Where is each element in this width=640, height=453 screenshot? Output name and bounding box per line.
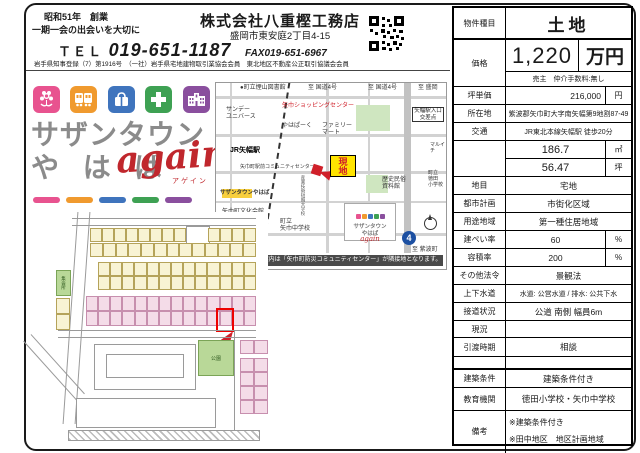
unit-price-label: 坪単価 bbox=[454, 87, 506, 104]
land-category-label: 地目 bbox=[454, 177, 506, 194]
lot-cell bbox=[154, 243, 167, 257]
lot-cell bbox=[254, 372, 268, 386]
plat-road-hatched bbox=[68, 430, 260, 441]
lot-cell bbox=[98, 262, 110, 276]
map-mini-logo: サザンタウン やはば again bbox=[344, 203, 396, 241]
qr-code-icon bbox=[368, 15, 405, 52]
lot-strip bbox=[56, 298, 70, 330]
logo-script-again: again bbox=[115, 132, 229, 182]
lot-cell bbox=[195, 262, 207, 276]
row-other-laws: その他法令 景観法 bbox=[454, 266, 631, 284]
lot-cell bbox=[232, 228, 244, 242]
lot-cell bbox=[128, 243, 141, 257]
location-value: 紫波郡矢巾町大字南矢幅第9地割87-49 bbox=[506, 105, 631, 122]
lot-cell bbox=[110, 276, 122, 290]
remarks-line1: ※建築条件付き bbox=[509, 415, 628, 432]
plat-block bbox=[76, 398, 216, 428]
remarks-line2: ※田中地区 地区計画地域 bbox=[509, 432, 628, 449]
coverage-unit: % bbox=[605, 231, 631, 248]
current-state-label: 現況 bbox=[454, 321, 506, 337]
row-coverage-ratio: 建ぺい率 60 % bbox=[454, 230, 631, 248]
lot-strip bbox=[98, 276, 256, 290]
lot-cell bbox=[141, 243, 154, 257]
lot-cell bbox=[179, 243, 192, 257]
lot-cell bbox=[138, 228, 150, 242]
building-condition-value: 建築条件付き bbox=[506, 370, 631, 387]
lot-cell bbox=[56, 314, 70, 330]
row-spacer bbox=[454, 356, 631, 368]
spacer-label bbox=[454, 357, 506, 368]
lot-cell bbox=[232, 276, 244, 290]
plat-road bbox=[72, 218, 256, 219]
compass-icon bbox=[424, 217, 437, 230]
map-label-to-route4-b: 至 国道4号 bbox=[368, 85, 397, 92]
schools-value: 徳田小学校・矢巾中学校 bbox=[506, 388, 631, 410]
lot-strip bbox=[240, 358, 268, 372]
lot-cell bbox=[240, 340, 254, 354]
header-divider bbox=[26, 70, 450, 71]
target-lot-highlight bbox=[216, 308, 234, 332]
plat-road bbox=[58, 337, 256, 338]
other-laws-label: その他法令 bbox=[454, 267, 506, 284]
plat-road bbox=[58, 330, 256, 331]
water-label: 上下水道 bbox=[454, 285, 506, 302]
lot-cell bbox=[135, 311, 147, 326]
price-unit: 万円 bbox=[578, 40, 631, 71]
lot-cell bbox=[220, 262, 232, 276]
lot-cell bbox=[254, 386, 268, 400]
map-label-southern-town: サザンタウンやはば bbox=[220, 190, 270, 196]
lot-cell bbox=[102, 228, 114, 242]
meeting-hall-label: 集会所 bbox=[61, 276, 67, 290]
train-icon bbox=[70, 86, 97, 113]
founded-year: 昭和51年 創業 bbox=[44, 10, 108, 23]
location-label: 所在地 bbox=[454, 105, 506, 122]
tel-label: ＴＥＬ bbox=[58, 44, 103, 59]
land-category-value: 宅地 bbox=[506, 177, 631, 194]
lot-cell bbox=[254, 400, 268, 414]
lot-cell bbox=[183, 296, 195, 311]
lot-cell bbox=[244, 311, 256, 326]
price-note: 売主 仲介手数料:無し bbox=[506, 71, 631, 86]
row-water-sewer: 上下水道 水道: 公営水道 / 排水: 公共下水 bbox=[454, 284, 631, 302]
spacer-value bbox=[506, 357, 631, 368]
row-zoning: 用途地域 第一種住居地域 bbox=[454, 212, 631, 230]
map-label-to-route4-a: 至 国道4号 bbox=[308, 85, 337, 92]
park-lot: 公園 bbox=[198, 340, 234, 376]
floor-ratio-unit: % bbox=[605, 249, 631, 266]
lot-cell bbox=[114, 228, 126, 242]
lot-cell bbox=[208, 228, 220, 242]
row-delivery: 引渡時期 相談 bbox=[454, 337, 631, 356]
bag-icon bbox=[108, 86, 135, 113]
map-label-maruichi: マルイチ bbox=[430, 143, 446, 155]
lot-cell bbox=[116, 243, 129, 257]
map-label-to-morioka: 至 盛岡 bbox=[418, 85, 438, 92]
phone-row: ＴＥＬ 019-651-1187 FAX019-651-6967 bbox=[58, 40, 327, 61]
row-building-condition: 建築条件 建築条件付き bbox=[454, 368, 631, 387]
plat-road bbox=[234, 330, 235, 440]
road-value: 公道 南側 幅員6m bbox=[506, 303, 631, 320]
remarks-value: ※建築条件付き ※田中地区 地区計画地域 bbox=[506, 411, 631, 453]
row-location: 所在地 紫波郡矢巾町大字南矢幅第9地割87-49 bbox=[454, 104, 631, 122]
lot-cell bbox=[171, 296, 183, 311]
plat-road bbox=[72, 225, 256, 226]
lot-cell bbox=[147, 311, 159, 326]
lot-cell bbox=[98, 296, 110, 311]
lot-cell bbox=[171, 311, 183, 326]
area-tsubo-unit: 坪 bbox=[605, 159, 631, 176]
school-icon bbox=[183, 86, 210, 113]
property-type-label: 物件種目 bbox=[454, 8, 506, 38]
unit-price-unit: 円 bbox=[605, 87, 631, 104]
lot-cell bbox=[134, 276, 146, 290]
lot-cell bbox=[243, 243, 256, 257]
lot-strip bbox=[240, 372, 268, 386]
row-property-type: 物件種目 土地 bbox=[454, 8, 631, 38]
property-type-value: 土地 bbox=[506, 8, 631, 38]
row-remarks: 備考 ※建築条件付き ※田中地区 地区計画地域 bbox=[454, 410, 631, 453]
property-detail-table: 物件種目 土地 価格 1,220 万円 売主 仲介手数料:無し 坪単価 216,… bbox=[452, 6, 633, 446]
map-label-junior-high: 町立 矢巾中学校 bbox=[280, 219, 310, 233]
lot-cell bbox=[220, 228, 232, 242]
lot-strip bbox=[240, 340, 268, 354]
lot-cell bbox=[254, 358, 268, 372]
site-callout: 現 地 bbox=[330, 155, 356, 177]
area-sqm-value: 186.7 bbox=[506, 141, 605, 158]
lot-cell bbox=[147, 276, 159, 290]
row-access: 交通 JR東北本線矢幅駅 徒歩20分 bbox=[454, 122, 631, 140]
lot-cell bbox=[192, 243, 205, 257]
lot-cell bbox=[183, 262, 195, 276]
map-label-sunday: サンデー ユニバース bbox=[226, 107, 256, 121]
meeting-hall-lot: 集会所 bbox=[56, 270, 71, 296]
medical-cross-icon bbox=[145, 86, 172, 113]
lot-cell bbox=[195, 296, 207, 311]
row-land-area: 186.7 ㎡ 56.47 坪 bbox=[454, 140, 631, 176]
lot-cell bbox=[244, 262, 256, 276]
map-green-area bbox=[356, 105, 390, 131]
city-planning-label: 都市計画 bbox=[454, 195, 506, 212]
floor-ratio-value: 200 bbox=[506, 249, 605, 266]
lot-cell bbox=[171, 276, 183, 290]
zoning-label: 用途地域 bbox=[454, 213, 506, 230]
lot-cell bbox=[122, 262, 134, 276]
zoning-value: 第一種住居地域 bbox=[506, 213, 631, 230]
row-city-planning: 都市計画 市街化区域 bbox=[454, 194, 631, 212]
lot-cell bbox=[86, 311, 98, 326]
dash-orange bbox=[66, 197, 93, 203]
lot-cell bbox=[207, 262, 219, 276]
lot-strip bbox=[98, 262, 256, 276]
floor-ratio-label: 容積率 bbox=[454, 249, 506, 266]
delivery-label: 引渡時期 bbox=[454, 338, 506, 356]
price-label: 価格 bbox=[454, 40, 506, 86]
lot-cell bbox=[159, 262, 171, 276]
access-label: 交通 bbox=[454, 123, 506, 140]
delivery-value: 相談 bbox=[506, 338, 631, 356]
lot-cell bbox=[174, 228, 186, 242]
lot-cell bbox=[207, 276, 219, 290]
map-label-station: JR矢幅駅 bbox=[230, 147, 260, 155]
lot-cell bbox=[162, 228, 174, 242]
logo-dash-row bbox=[33, 190, 198, 208]
lot-cell bbox=[244, 228, 256, 242]
lot-cell bbox=[240, 372, 254, 386]
lot-cell bbox=[126, 228, 138, 242]
lot-strip bbox=[240, 400, 268, 414]
lot-cell bbox=[183, 311, 195, 326]
mini-logo-icons bbox=[345, 206, 395, 224]
remarks-label: 備考 bbox=[454, 411, 506, 453]
row-floor-area-ratio: 容積率 200 % bbox=[454, 248, 631, 266]
lot-cell bbox=[254, 340, 268, 354]
lot-cell bbox=[150, 228, 162, 242]
lot-cell bbox=[244, 276, 256, 290]
dash-pink bbox=[33, 197, 60, 203]
lot-cell bbox=[159, 311, 171, 326]
plat-block bbox=[106, 354, 184, 378]
lot-cell bbox=[110, 311, 122, 326]
tel-number: 019-651-1187 bbox=[109, 40, 232, 60]
lot-cell bbox=[122, 311, 134, 326]
lot-cell bbox=[230, 243, 243, 257]
lot-cell bbox=[110, 262, 122, 276]
lot-cell bbox=[110, 296, 122, 311]
map-label-crossing: 矢幅駅入口 交差点 bbox=[412, 107, 444, 122]
lot-cell bbox=[90, 228, 102, 242]
coverage-label: 建ぺい率 bbox=[454, 231, 506, 248]
lot-cell bbox=[220, 276, 232, 290]
lot-cell bbox=[159, 296, 171, 311]
lot-strip bbox=[240, 386, 268, 400]
lot-cell bbox=[195, 276, 207, 290]
lot-cell bbox=[98, 276, 110, 290]
lot-strip bbox=[90, 228, 186, 242]
map-label-university: 産業技術短期大学校 bbox=[300, 175, 306, 216]
row-land-category: 地目 宅地 bbox=[454, 176, 631, 194]
logo-script-kana: アゲイン bbox=[172, 176, 208, 186]
lot-cell bbox=[147, 296, 159, 311]
lot-cell bbox=[90, 243, 103, 257]
lot-cell bbox=[171, 262, 183, 276]
area-sqm-unit: ㎡ bbox=[605, 141, 631, 158]
park-label: 公園 bbox=[211, 355, 221, 362]
lot-cell bbox=[122, 296, 134, 311]
lot-strip bbox=[208, 228, 256, 242]
company-slogan: 一期一会の出会いを大切に bbox=[32, 23, 140, 36]
lot-cell bbox=[205, 243, 218, 257]
city-planning-value: 市街化区域 bbox=[506, 195, 631, 212]
map-label-museum: 歴史民俗 資料館 bbox=[382, 177, 406, 191]
dash-purple bbox=[165, 197, 192, 203]
lot-cell bbox=[159, 276, 171, 290]
map-road bbox=[216, 96, 446, 99]
building-condition-label: 建築条件 bbox=[454, 370, 506, 387]
row-price: 価格 1,220 万円 売主 仲介手数料:無し bbox=[454, 38, 631, 86]
row-current-state: 現況 bbox=[454, 320, 631, 337]
fax-number: FAX019-651-6967 bbox=[245, 48, 327, 59]
lot-cell bbox=[240, 400, 254, 414]
flower-icon bbox=[33, 86, 60, 113]
lot-cell bbox=[232, 262, 244, 276]
lot-cell bbox=[218, 243, 231, 257]
license-registration: 岩手県知事登録（7）第1916号 （一社）岩手県宅地建物取引業協会会員 東北地区… bbox=[34, 59, 446, 68]
access-value: JR東北本線矢幅駅 徒歩20分 bbox=[506, 123, 631, 140]
lot-cell bbox=[98, 311, 110, 326]
row-unit-price: 坪単価 216,000 円 bbox=[454, 86, 631, 104]
map-label-shopping-center: 矢巾ショッピングセンター bbox=[282, 103, 354, 110]
lot-cell bbox=[240, 358, 254, 372]
lot-cell bbox=[103, 243, 116, 257]
row-road-access: 接道状況 公道 南側 幅員6m bbox=[454, 302, 631, 320]
lot-cell bbox=[134, 262, 146, 276]
lot-cell bbox=[122, 276, 134, 290]
road-label: 接道状況 bbox=[454, 303, 506, 320]
area-tsubo-value: 56.47 bbox=[506, 159, 605, 176]
price-value: 1,220 bbox=[506, 40, 578, 71]
lot-cell bbox=[244, 296, 256, 311]
coverage-value: 60 bbox=[506, 231, 605, 248]
lot-strip bbox=[90, 243, 256, 257]
route4-road bbox=[404, 83, 411, 253]
lot-cell bbox=[183, 276, 195, 290]
lot-cell bbox=[167, 243, 180, 257]
lot-cell bbox=[86, 296, 98, 311]
lot-cell bbox=[147, 262, 159, 276]
lot-cell bbox=[56, 298, 70, 314]
lot-cell bbox=[135, 296, 147, 311]
map-label-familymart: ファミリー マート bbox=[322, 123, 352, 137]
route4-shield: 4 bbox=[402, 231, 416, 245]
map-label-tokuda-es: 町立 徳田 小学校 bbox=[428, 171, 443, 188]
area-label bbox=[454, 141, 506, 176]
map-label-library: ●町立煙山図書館 bbox=[240, 85, 286, 92]
other-laws-value: 景観法 bbox=[506, 267, 631, 284]
water-value: 水道: 公営水道 / 排水: 公共下水 bbox=[506, 285, 631, 302]
mini-logo-script: again bbox=[345, 235, 395, 243]
map-label-community-center: 矢巾町駅前コミュニティセンター bbox=[240, 165, 315, 171]
schools-label: 教育機関 bbox=[454, 388, 506, 410]
map-label-yahapark: やはぱーく bbox=[282, 123, 312, 130]
row-schools: 教育機関 徳田小学校・矢巾中学校 bbox=[454, 387, 631, 410]
lot-cell bbox=[240, 386, 254, 400]
dash-green bbox=[132, 197, 159, 203]
lot-cell bbox=[195, 311, 207, 326]
map-label-to-shiwa: 至 紫波町 bbox=[412, 247, 438, 254]
dash-blue bbox=[99, 197, 126, 203]
subdivision-plat-map: 集会所 公園 bbox=[28, 212, 268, 444]
map-road bbox=[216, 201, 446, 203]
current-state-value bbox=[506, 321, 631, 337]
unit-price-value: 216,000 bbox=[506, 87, 605, 104]
